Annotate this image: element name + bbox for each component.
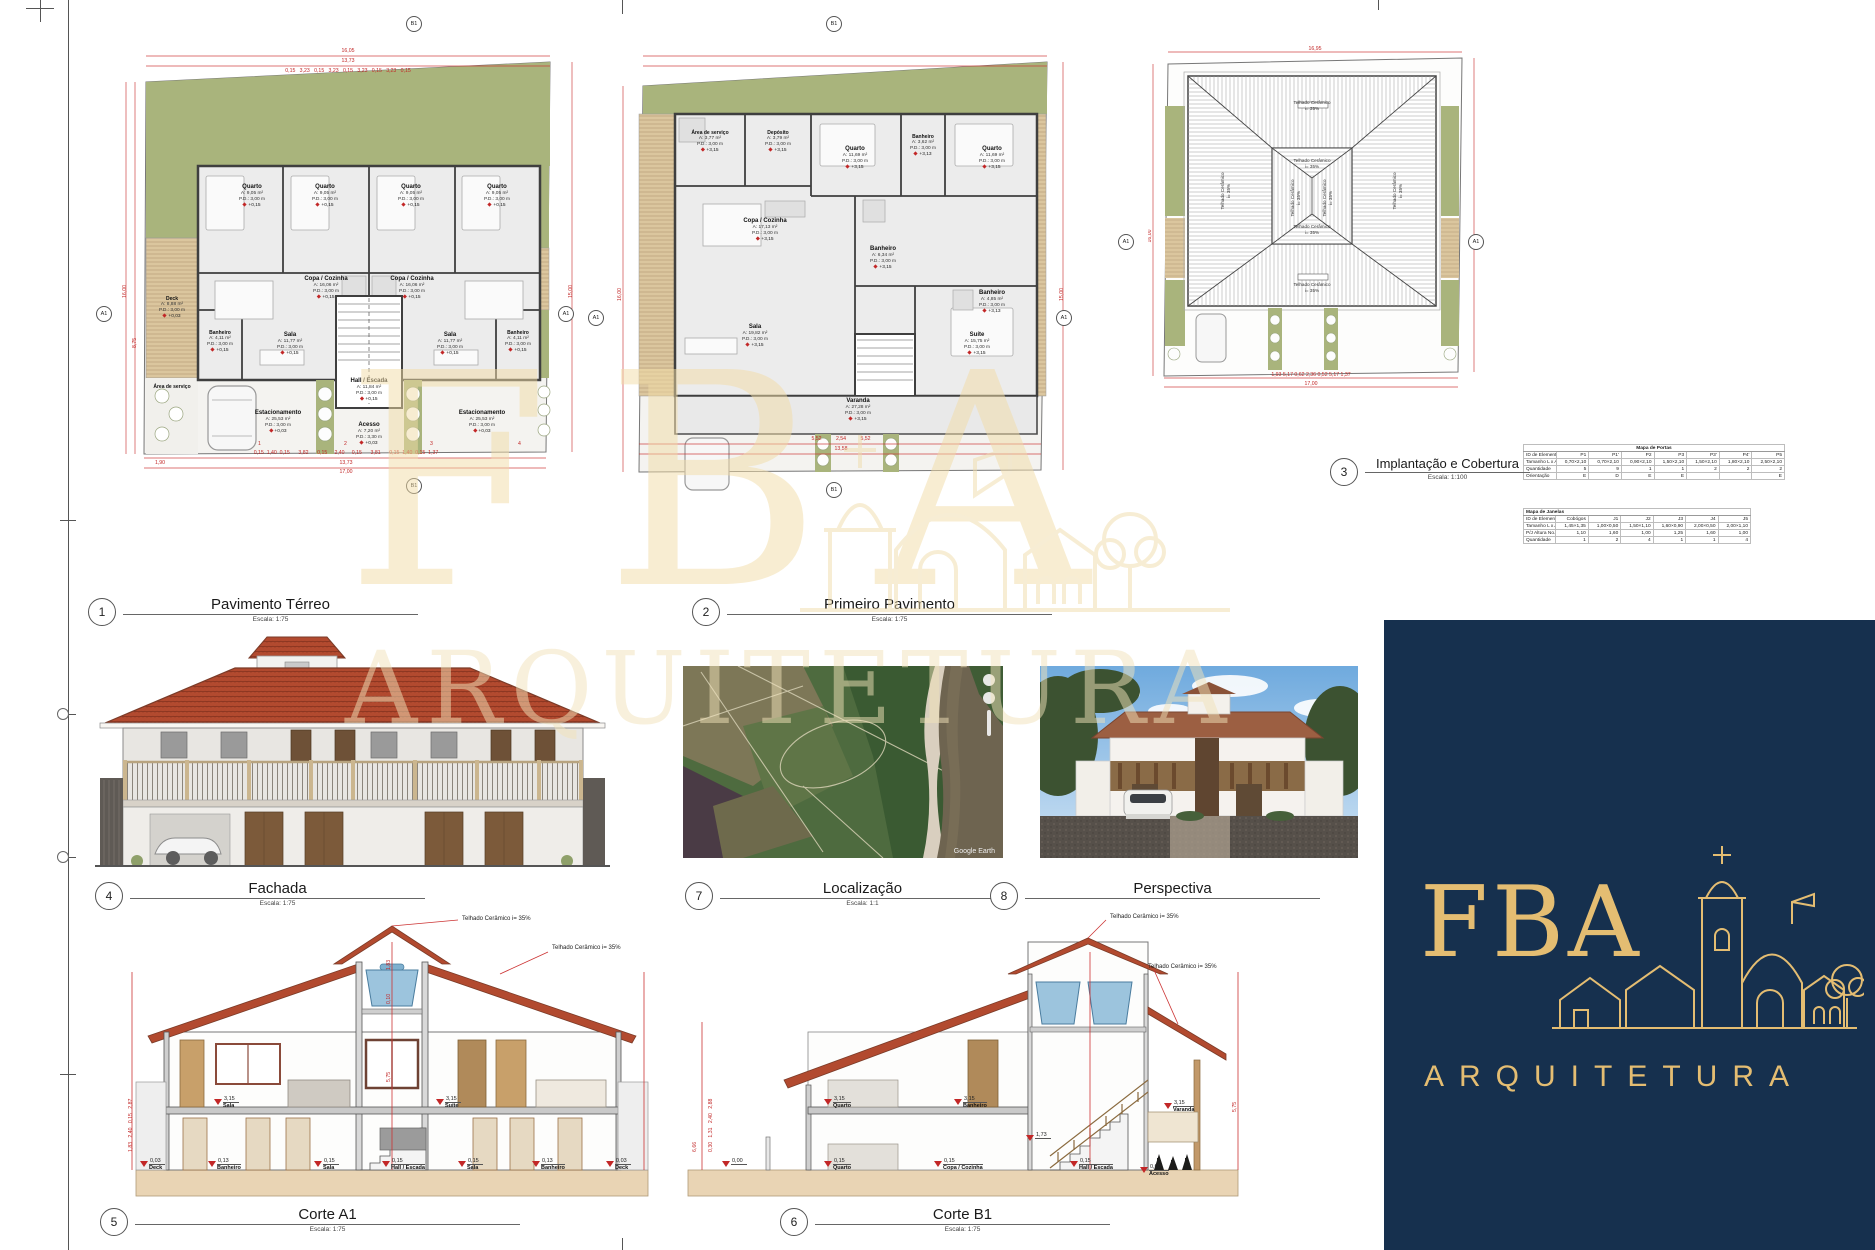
svg-text:Telhado Cerâmico: Telhado Cerâmico: [1322, 179, 1327, 216]
dim-bottom-segs: 0,15 1,40 0,15 3,82 0,15 2,40 0,15 3,81 …: [254, 450, 439, 456]
level-marker: 0,15Sala: [314, 1158, 339, 1171]
dim-right-total: 15,00: [1059, 288, 1065, 301]
room-label-acesso: AcessoA: 7,20 m²P.D.: 3,30 m+0,03: [356, 422, 382, 446]
plan-pavimento-terreo: QuartoA: 9,05 m²P.D.: 3,00 m+0,15 Quarto…: [120, 48, 580, 478]
drawing-title-perspectiva: 8 Perspectiva: [990, 880, 1320, 910]
drawing-title-implantacao: 3 Implantação e CoberturaEscala: 1:100: [1330, 456, 1530, 486]
level-marker: 3,15Varanda: [1164, 1100, 1194, 1113]
room-label-quarto: QuartoA: 9,05 m²P.D.: 3,00 m+0,15: [398, 184, 424, 208]
roof-callout: Telhado Cerâmico i= 35%: [1148, 964, 1217, 970]
localizacao-graphics: Google Earth: [683, 666, 1003, 858]
svg-text:Telhado Cerâmico: Telhado Cerâmico: [1293, 224, 1330, 229]
dim-right-total: 15,00: [568, 285, 574, 298]
sheet-fold-line: [68, 0, 69, 1250]
church-skyline-icon: [1552, 828, 1864, 1046]
drawing-title-corte-a1: 5 Corte A1Escala: 1:75: [100, 1206, 520, 1236]
fold-tick: [60, 1074, 76, 1075]
title-scale: Escala: 1:75: [123, 615, 418, 623]
svg-text:Telhado Cerâmico: Telhado Cerâmico: [1293, 100, 1330, 105]
level-marker: 3,15Banheiro: [954, 1096, 987, 1109]
room-label-quarto: QuartoA: 9,05 m²P.D.: 3,00 m+0,15: [484, 184, 510, 208]
section-marker-a1: A1: [1056, 310, 1072, 326]
title-label: Corte B1: [815, 1206, 1110, 1225]
title-number: 7: [685, 882, 713, 910]
brand-subtitle: ARQUITETURA: [1424, 1060, 1804, 1094]
level-marker: 0,13Banheiro: [208, 1158, 241, 1171]
dim-bottom-total: 17,00: [340, 469, 353, 475]
room-label-deck: DeckA: 8,88 m²P.D.: 3,00 m+0,03: [159, 296, 185, 319]
svg-text:Telhado Cerâmico: Telhado Cerâmico: [1392, 172, 1397, 209]
dim-top-segs: 0,15 3,23 0,15 3,23 0,15 3,23 0,15 3,23 …: [285, 68, 410, 74]
roof-callout: Telhado Cerâmico i= 35%: [552, 945, 621, 951]
svg-text:i= 35%: i= 35%: [1328, 191, 1333, 205]
plan-cobertura-graphics: Telhado Cerâmicoi= 35% Telhado Cerâmicoi…: [1148, 46, 1483, 391]
svg-text:i= 35%: i= 35%: [1305, 164, 1319, 169]
level-marker: 3,15Suíte: [436, 1096, 461, 1109]
svg-text:i= 35%: i= 35%: [1305, 288, 1319, 293]
room-label-area-servico: Área de serviçoA: 3,77 m²P.D.: 3,00 m+3,…: [691, 130, 728, 153]
fold-tick-top: [1378, 0, 1379, 10]
section-marker-b1: B1: [406, 478, 422, 494]
room-label-quarto: QuartoA: 9,05 m²P.D.: 3,00 m+0,15: [312, 184, 338, 208]
dim-left-total: 16,00: [122, 285, 128, 298]
dim-center: 5,75: [386, 1072, 392, 1082]
dim-left-total: 16,00: [617, 288, 623, 301]
level-marker: 0,15Hall / Escada: [1070, 1158, 1113, 1171]
room-label-copa: Copa / CozinhaA: 16,06 m²P.D.: 3,00 m+0,…: [390, 276, 433, 300]
title-label: Pavimento Térreo: [123, 596, 418, 615]
roof-callout: Telhado Cerâmico i= 35%: [462, 916, 531, 922]
dim-center2: 0,10: [386, 994, 392, 1004]
title-scale: Escala: 1:75: [135, 1225, 520, 1233]
corner-mark: [40, 0, 41, 22]
drawing-title-corte-b1: 6 Corte B1Escala: 1:75: [780, 1206, 1110, 1236]
architectural-sheet: { "titles": { "t1": {"num":"1","label":"…: [0, 0, 1875, 1250]
room-label-banheiro: BanheiroA: 4,11 m²P.D.: 3,00 m+0,15: [505, 330, 531, 353]
title-scale: Escala: 1:100: [1365, 473, 1530, 481]
dim-left-chain: 0,30 1,31 2,40 2,88: [708, 1099, 714, 1152]
title-number: 3: [1330, 458, 1358, 486]
punch-hole: [57, 708, 69, 720]
dim-center: 5,75: [1232, 1102, 1238, 1112]
room-label-copa: Copa / CozinhaA: 17,13 m²P.D.: 3,00 m+3,…: [743, 218, 786, 242]
level-marker: 0,15Copa / Cozinha: [934, 1158, 983, 1171]
room-label-banheiro: BanheiroA: 4,11 m²P.D.: 3,00 m+0,15: [207, 330, 233, 353]
stall-number: 3: [430, 441, 433, 447]
room-label-estacionamento: EstacionamentoA: 25,53 m²P.D.: 3,00 m+0,…: [255, 410, 301, 434]
title-label: Corte A1: [135, 1206, 520, 1225]
section-marker-b1: B1: [826, 16, 842, 32]
room-label-deposito: DepósitoA: 3,79 m²P.D.: 3,00 m+3,15: [765, 130, 791, 153]
dim-left-chain: 1,83 2,40 0,15 2,87: [128, 1099, 134, 1152]
title-number: 6: [780, 1208, 808, 1236]
dim-bottom-left: 1,90: [155, 460, 165, 466]
punch-hole: [57, 851, 69, 863]
level-marker: 0,00: [722, 1158, 747, 1167]
mapa-de-janelas-table: Mapa de Janelas ID de ElementoCobógosJ1J…: [1523, 508, 1751, 544]
level-marker: 0,15Quarto: [824, 1158, 851, 1171]
level-marker: 0,03Deck: [606, 1158, 631, 1171]
fold-tick: [60, 520, 76, 521]
title-label: Fachada: [130, 880, 425, 899]
svg-text:16,00: 16,00: [1148, 229, 1153, 242]
title-scale: Escala: 1:75: [815, 1225, 1110, 1233]
room-label-sala: SalaA: 19,82 m²P.D.: 3,00 m+3,15: [742, 324, 768, 348]
drawing-title-primeiro-pavimento: 2 Primeiro PavimentoEscala: 1:75: [692, 596, 1052, 626]
section-marker-a1: A1: [1468, 234, 1484, 250]
section-marker-a1: A1: [1118, 234, 1134, 250]
svg-text:Telhado Cerâmico: Telhado Cerâmico: [1293, 282, 1330, 287]
dim-left-total: 6,66: [692, 1142, 698, 1152]
svg-text:i= 35%: i= 35%: [1296, 191, 1301, 205]
plan-implantacao-cobertura: Telhado Cerâmicoi= 35% Telhado Cerâmicoi…: [1148, 46, 1483, 391]
map-credit: Google Earth: [954, 848, 995, 855]
drawing-title-localizacao: 7 LocalizaçãoEscala: 1:1: [685, 880, 1005, 910]
plan-primeiro-graphics: [615, 46, 1070, 496]
room-label-sala: SalaA: 11,77 m²P.D.: 3,00 m+0,15: [437, 332, 463, 356]
section-marker-b1: B1: [826, 482, 842, 498]
room-label-quarto: QuartoA: 9,05 m²P.D.: 3,00 m+0,15: [239, 184, 265, 208]
svg-text:16,95: 16,95: [1309, 46, 1322, 52]
corte-b1-drawing: Telhado Cerâmico i= 35% Telhado Cerâmico…: [678, 912, 1256, 1204]
svg-text:Telhado Cerâmico: Telhado Cerâmico: [1290, 179, 1295, 216]
room-label-banheiro: BanheiroA: 6,34 m²P.D.: 3,00 m+3,15: [870, 246, 896, 270]
localizacao-satellite-image: Google Earth: [683, 666, 1003, 858]
plan-terreo-graphics: [120, 48, 580, 478]
svg-text:i= 35%: i= 35%: [1398, 184, 1403, 198]
section-marker-a1: A1: [588, 310, 604, 326]
dim-center3: 1,83: [386, 960, 392, 970]
brand-panel: FBA ARQUITETURA: [1384, 620, 1875, 1250]
title-number: 1: [88, 598, 116, 626]
level-marker: 1,73: [1026, 1132, 1051, 1141]
svg-text:1,93 5,17 0,62 2,36: 1,93 5,17 0,62 2,36 0,52 5,17 1,37: [1271, 372, 1350, 378]
stall-number: 2: [344, 441, 347, 447]
drawing-title-fachada: 4 FachadaEscala: 1:75: [95, 880, 425, 910]
fachada-drawing: [95, 628, 610, 873]
section-marker-b1: B1: [406, 16, 422, 32]
room-label-varanda: VarandaA: 27,28 m²P.D.: 3,00 m+3,15: [845, 398, 871, 422]
stall-number: 1: [258, 441, 261, 447]
section-marker-a1: A1: [558, 306, 574, 322]
stall-number: 4: [518, 441, 521, 447]
title-label: Localização: [720, 880, 1005, 899]
drawing-title-pavimento-terreo: 1 Pavimento TérreoEscala: 1:75: [88, 596, 418, 626]
room-label-suite: SuíteA: 15,75 m²P.D.: 3,00 m+3,15: [964, 332, 990, 356]
level-marker: 3,15Quarto: [824, 1096, 851, 1109]
level-marker: 0,03Deck: [140, 1158, 165, 1171]
room-label-estacionamento: EstacionamentoA: 25,53 m²P.D.: 3,00 m+0,…: [459, 410, 505, 434]
svg-text:Telhado Cerâmico: Telhado Cerâmico: [1293, 158, 1330, 163]
dim-bottom-total: 13,58: [835, 446, 848, 452]
perspectiva-graphics: [1040, 666, 1358, 858]
title-number: 2: [692, 598, 720, 626]
title-number: 5: [100, 1208, 128, 1236]
svg-text:i= 35%: i= 35%: [1305, 106, 1319, 111]
room-label-sala: SalaA: 11,77 m²P.D.: 3,00 m+0,15: [277, 332, 303, 356]
level-marker: 0,15Sala: [458, 1158, 483, 1171]
room-label-banheiro: BanheiroA: 4,85 m²P.D.: 3,00 m+3,13: [979, 290, 1005, 314]
section-marker-a1: A1: [96, 306, 112, 322]
mapa-de-portas-table: Mapa de Portas ID de ElementoP1P1'P2P3P3…: [1523, 444, 1785, 480]
level-marker: 0,15Hall / Escada: [382, 1158, 425, 1171]
room-label-quarto: QuartoA: 11,69 m²P.D.: 3,00 m+3,15: [979, 146, 1005, 170]
title-label: Primeiro Pavimento: [727, 596, 1052, 615]
title-scale: Escala: 1:1: [720, 899, 1005, 907]
title-label: Implantação e Cobertura: [1365, 456, 1530, 473]
dim-bottom-sub: 13,73: [340, 460, 353, 466]
title-number: 8: [990, 882, 1018, 910]
corte-a1-drawing: Telhado Cerâmico i= 35% Telhado Cerâmico…: [128, 912, 656, 1204]
svg-text:Telhado Cerâmico: Telhado Cerâmico: [1220, 172, 1225, 209]
perspectiva-render-image: [1040, 666, 1358, 858]
room-label-area-servico: Área de serviço: [153, 384, 190, 390]
fachada-graphics: [95, 628, 610, 873]
title-number: 4: [95, 882, 123, 910]
title-scale: Escala: 1:75: [130, 899, 425, 907]
title-scale: [1025, 899, 1320, 900]
fold-tick-bottom: [622, 1238, 623, 1250]
level-marker: 0,00Acesso: [1140, 1164, 1169, 1177]
svg-text:17,00: 17,00: [1305, 381, 1318, 387]
room-label-banheiro: BanheiroA: 3,62 m²P.D.: 3,00 m+3,13: [910, 134, 936, 157]
dim-left-sub: 8,75: [132, 338, 138, 348]
dim-top-total: 16,05: [342, 48, 355, 54]
title-scale: Escala: 1:75: [727, 615, 1052, 623]
svg-text:i= 35%: i= 35%: [1305, 230, 1319, 235]
level-marker: 3,15Sala: [214, 1096, 239, 1109]
fold-tick-top: [622, 0, 623, 14]
room-label-quarto: QuartoA: 11,69 m²P.D.: 3,00 m+3,15: [842, 146, 868, 170]
svg-text:i= 35%: i= 35%: [1226, 184, 1231, 198]
roof-callout: Telhado Cerâmico i= 35%: [1110, 914, 1179, 920]
room-label-copa: Copa / CozinhaA: 16,06 m²P.D.: 3,00 m+0,…: [304, 276, 347, 300]
plan-primeiro-pavimento: Área de serviçoA: 3,77 m²P.D.: 3,00 m+3,…: [615, 46, 1070, 496]
level-marker: 0,13Banheiro: [532, 1158, 565, 1171]
title-label: Perspectiva: [1025, 880, 1320, 899]
room-label-hall: Hall / EscadaA: 11,84 m²P.D.: 3,00 m+0,1…: [350, 378, 387, 402]
dim-bottom-segs: 5,52 2,54 5,52: [811, 436, 870, 442]
dim-top-sub: 13,73: [342, 58, 355, 64]
